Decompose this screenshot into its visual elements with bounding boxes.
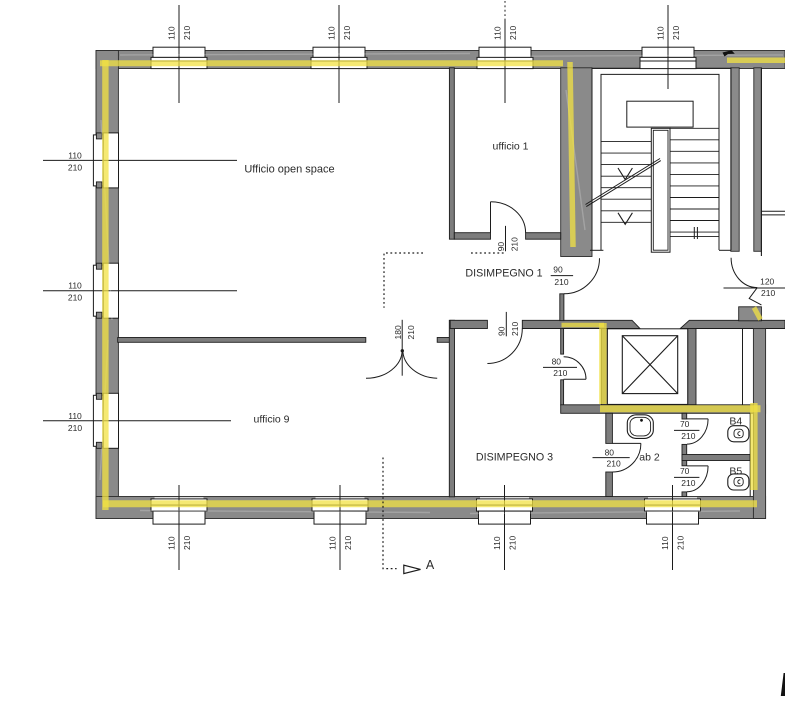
svg-text:90: 90: [497, 326, 507, 336]
svg-text:80: 80: [552, 357, 562, 367]
svg-text:180: 180: [393, 325, 403, 339]
svg-text:110: 110: [167, 536, 177, 550]
svg-text:110: 110: [68, 411, 82, 421]
svg-text:110: 110: [167, 26, 177, 40]
svg-text:120: 120: [760, 277, 774, 287]
svg-text:210: 210: [671, 26, 681, 40]
svg-text:DISIMPEGNO 3: DISIMPEGNO 3: [476, 452, 553, 464]
svg-text:ufficio 1: ufficio 1: [493, 141, 529, 153]
svg-text:210: 210: [68, 162, 82, 172]
svg-text:DISIMPEGNO 1: DISIMPEGNO 1: [465, 268, 542, 280]
svg-text:110: 110: [68, 150, 82, 160]
svg-text:ab 2: ab 2: [639, 452, 660, 464]
svg-text:210: 210: [343, 536, 353, 550]
svg-text:210: 210: [761, 288, 775, 298]
svg-text:70: 70: [680, 419, 690, 429]
svg-text:A: A: [426, 558, 435, 572]
svg-text:ufficio 9: ufficio 9: [254, 414, 290, 426]
svg-text:70: 70: [680, 466, 690, 476]
svg-text:210: 210: [510, 237, 520, 251]
svg-text:90: 90: [553, 264, 563, 274]
svg-text:210: 210: [554, 277, 568, 287]
svg-text:110: 110: [493, 26, 503, 40]
svg-text:210: 210: [342, 26, 352, 40]
svg-text:210: 210: [681, 478, 695, 488]
svg-text:210: 210: [681, 431, 695, 441]
svg-text:B5: B5: [729, 466, 742, 478]
svg-text:Ufficio open space: Ufficio open space: [244, 164, 334, 176]
svg-text:90: 90: [496, 242, 506, 252]
svg-text:110: 110: [492, 536, 502, 550]
svg-text:210: 210: [510, 322, 520, 336]
svg-text:210: 210: [68, 293, 82, 303]
svg-text:210: 210: [182, 536, 192, 550]
svg-text:210: 210: [676, 536, 686, 550]
svg-text:210: 210: [406, 325, 416, 339]
svg-text:110: 110: [327, 26, 337, 40]
svg-text:210: 210: [553, 368, 567, 378]
svg-text:110: 110: [656, 26, 666, 40]
svg-text:210: 210: [68, 423, 82, 433]
svg-text:80: 80: [605, 447, 615, 457]
svg-text:210: 210: [182, 26, 192, 40]
svg-text:210: 210: [508, 536, 518, 550]
svg-text:210: 210: [607, 459, 621, 469]
svg-text:110: 110: [328, 536, 338, 550]
svg-text:110: 110: [68, 281, 82, 291]
svg-text:210: 210: [508, 26, 518, 40]
svg-text:110: 110: [660, 536, 670, 550]
svg-text:B4: B4: [729, 416, 742, 428]
